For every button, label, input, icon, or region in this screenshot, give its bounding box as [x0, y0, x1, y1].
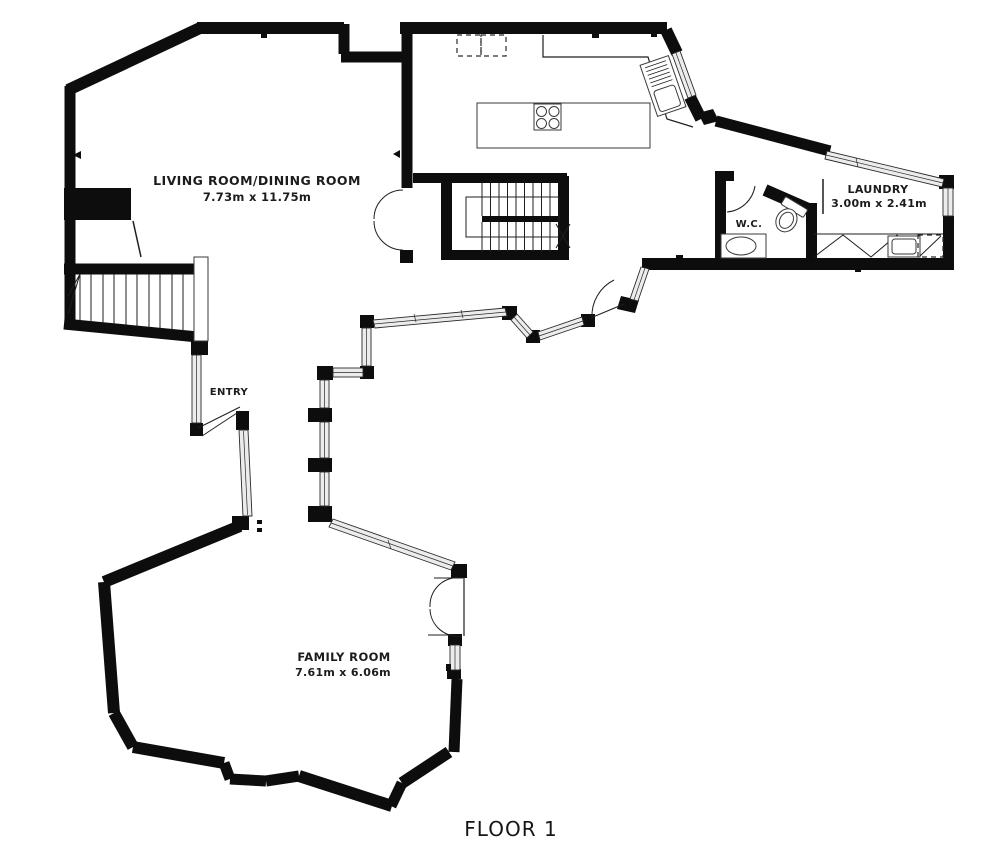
window-family-top	[329, 519, 455, 570]
kitchen-island	[477, 103, 650, 148]
basin-icon	[721, 234, 766, 258]
window-hall-long	[373, 308, 507, 328]
door-hallway	[592, 280, 624, 318]
kitchen	[457, 35, 693, 148]
entry-label: ENTRY	[210, 387, 249, 398]
family-room-dims: 7.61m x 6.06m	[295, 666, 391, 679]
door-entry	[198, 407, 240, 436]
fireplace-block	[64, 188, 131, 220]
staircase-main	[466, 183, 570, 252]
door-living-inner	[133, 221, 141, 257]
door-wc	[727, 186, 755, 212]
window-hall-short-down	[511, 314, 533, 338]
family-room-walls	[104, 526, 467, 806]
floor-title: FLOOR 1	[464, 817, 557, 841]
window-laundry-right	[943, 188, 953, 216]
laundry-counter-zigzag	[814, 235, 941, 257]
window-entry-upper	[192, 355, 201, 423]
living-room-label: LIVING ROOM/DINING ROOM	[153, 173, 361, 188]
laundry-label: LAUNDRY	[847, 183, 909, 196]
stair-landing-rail	[194, 257, 208, 341]
laundry-dims: 3.00m x 2.41m	[831, 197, 927, 210]
floor-plan-svg: LIVING ROOM/DINING ROOM 7.73m x 11.75m L…	[0, 0, 1000, 843]
family-room-label: FAMILY ROOM	[297, 650, 390, 664]
window-laundry-top	[825, 151, 944, 187]
living-room-dims: 7.73m x 11.75m	[203, 190, 311, 204]
laundry-sink-icon	[888, 236, 920, 257]
door-double-living	[374, 190, 403, 250]
floor-plan-page: LIVING ROOM/DINING ROOM 7.73m x 11.75m L…	[0, 0, 1000, 843]
window-hall-short-up	[538, 317, 584, 340]
window-above-hall-door	[630, 267, 649, 301]
wc-fixtures	[721, 196, 808, 258]
kitchen-appliance-dashed	[457, 35, 481, 56]
window-entry-lower	[239, 430, 252, 516]
glazed-wall-pillars	[308, 296, 639, 522]
wc-label: W.C.	[736, 219, 763, 230]
door-french-family	[428, 578, 464, 637]
kitchen-appliance-dashed-2	[481, 35, 506, 56]
window-family-right	[450, 645, 460, 670]
cooktop-icon	[534, 104, 561, 130]
